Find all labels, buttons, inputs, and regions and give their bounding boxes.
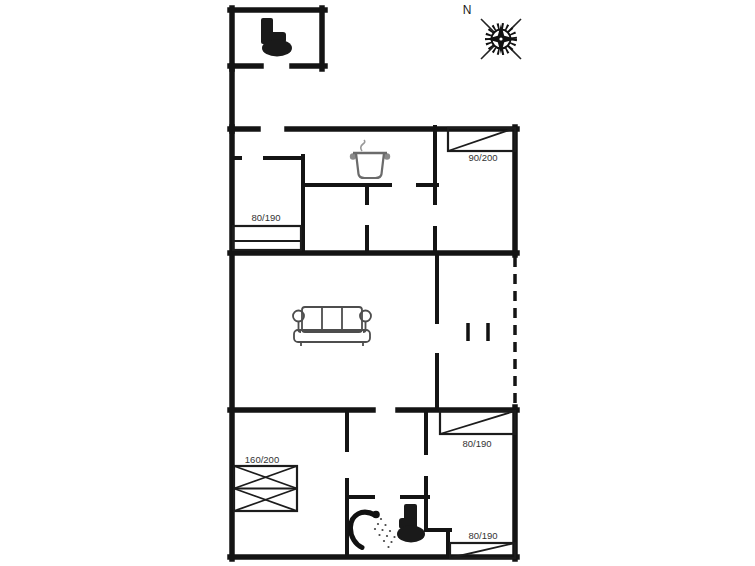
bed-size-label: 160/200 [245, 454, 279, 465]
bed-top-right: 90/200 [448, 128, 515, 163]
compass-rose-icon [481, 19, 521, 59]
sofa-icon [293, 307, 371, 346]
bed-size-label: 80/190 [462, 438, 491, 449]
outer-walls [230, 8, 517, 559]
bed-size-label: 80/190 [468, 530, 497, 541]
toilet-icon [261, 18, 292, 57]
shower-icon [350, 511, 395, 548]
toilet-icon-bathroom [397, 504, 425, 543]
bed-size-label: 90/200 [468, 152, 497, 163]
stove-pot-icon [350, 140, 390, 178]
floor-plan-drawing: 90/200 80/190 160/200 80/190 80/190 [0, 0, 755, 566]
north-label: N [463, 3, 472, 17]
bed-bottom-right-lower: 80/190 [450, 530, 515, 558]
bed-top-left: 80/190 [233, 212, 301, 250]
bed-double-bottom-left: 160/200 [234, 454, 297, 511]
bed-bottom-right-upper: 80/190 [440, 411, 515, 449]
terrace-door-marks [468, 323, 488, 341]
bed-size-label: 80/190 [251, 212, 280, 223]
floor-plan: 90/200 80/190 160/200 80/190 80/190 [0, 0, 755, 566]
